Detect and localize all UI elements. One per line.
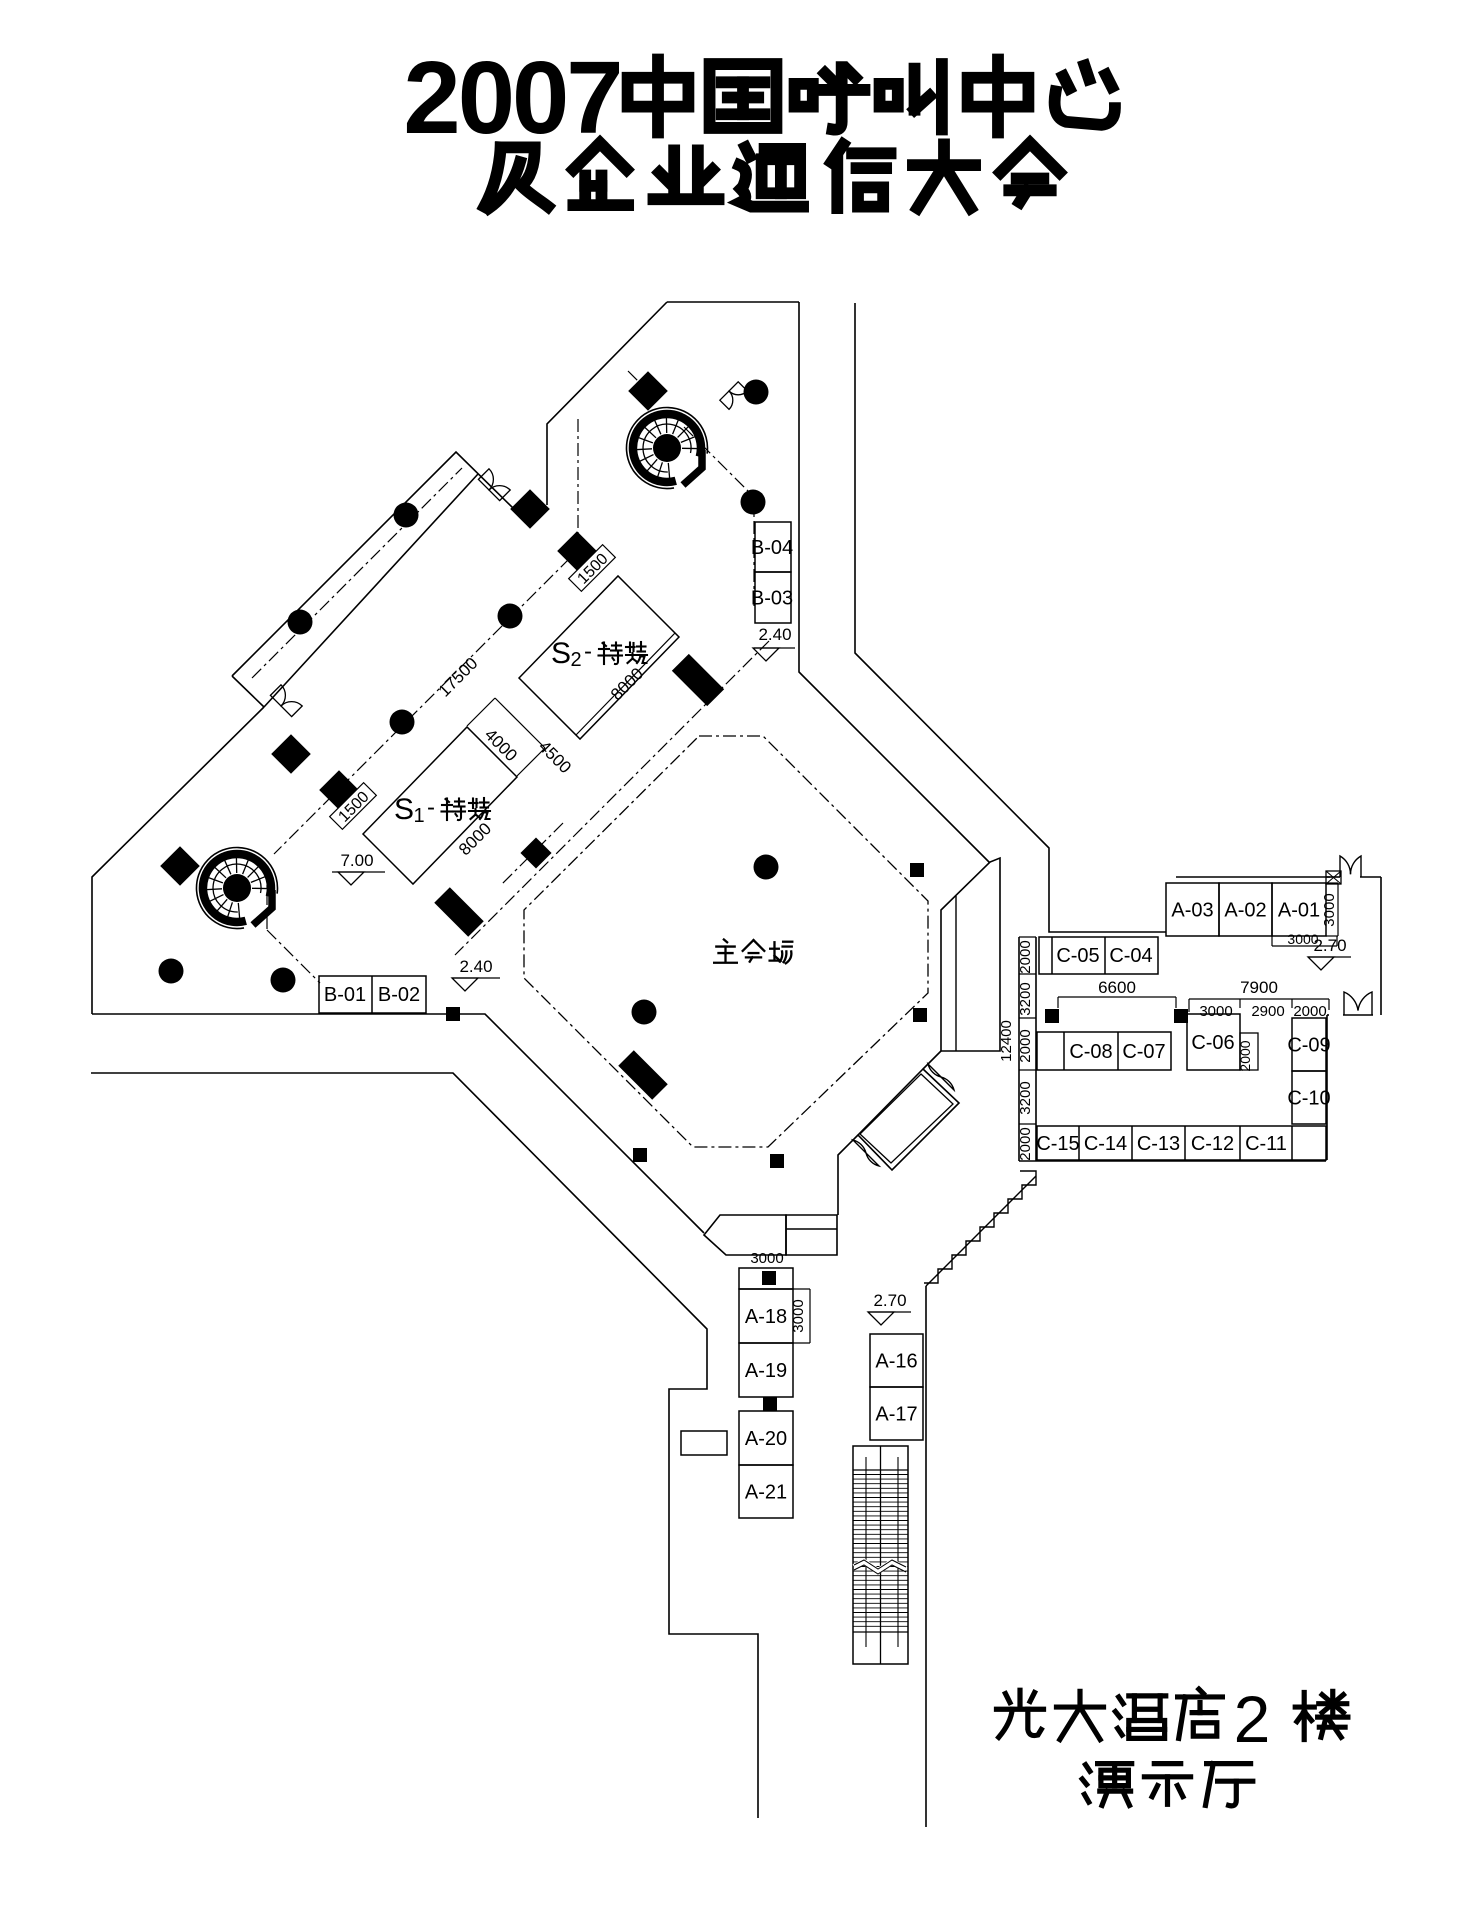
svg-text:2.40: 2.40 bbox=[758, 625, 791, 644]
svg-text:A-20: A-20 bbox=[745, 1428, 787, 1450]
svg-text:7900: 7900 bbox=[1240, 978, 1278, 997]
svg-text:C-15: C-15 bbox=[1036, 1133, 1079, 1155]
svg-text:B-02: B-02 bbox=[378, 984, 420, 1006]
svg-text:C-09: C-09 bbox=[1287, 1035, 1330, 1057]
svg-text:1: 1 bbox=[413, 805, 424, 827]
svg-text:3000: 3000 bbox=[1321, 893, 1338, 926]
svg-text:2000: 2000 bbox=[1017, 1127, 1034, 1160]
svg-text:C-12: C-12 bbox=[1191, 1133, 1234, 1155]
svg-text:A-17: A-17 bbox=[875, 1404, 917, 1426]
svg-text:2: 2 bbox=[1234, 1682, 1271, 1756]
svg-text:A-18: A-18 bbox=[745, 1306, 787, 1328]
svg-text:3000: 3000 bbox=[1199, 1003, 1232, 1020]
svg-text:6600: 6600 bbox=[1098, 978, 1136, 997]
svg-text:-: - bbox=[584, 638, 592, 665]
svg-text:B-03: B-03 bbox=[751, 588, 793, 610]
svg-text:C-04: C-04 bbox=[1109, 945, 1152, 967]
svg-text:2000: 2000 bbox=[1237, 1040, 1253, 1071]
svg-text:C-11: C-11 bbox=[1245, 1133, 1287, 1155]
svg-text:2.70: 2.70 bbox=[1313, 936, 1346, 955]
svg-text:2900: 2900 bbox=[1251, 1003, 1284, 1020]
svg-text:-: - bbox=[427, 794, 435, 821]
svg-text:A-02: A-02 bbox=[1224, 900, 1266, 922]
svg-text:7.00: 7.00 bbox=[340, 851, 373, 870]
svg-text:12400: 12400 bbox=[998, 1020, 1015, 1062]
svg-text:C-06: C-06 bbox=[1191, 1032, 1234, 1054]
svg-text:B-01: B-01 bbox=[324, 984, 366, 1006]
svg-text:A-16: A-16 bbox=[875, 1351, 917, 1373]
svg-text:S: S bbox=[551, 637, 571, 670]
svg-text:2.40: 2.40 bbox=[459, 957, 492, 976]
svg-text:2.70: 2.70 bbox=[873, 1291, 906, 1310]
svg-text:2000: 2000 bbox=[1017, 940, 1034, 973]
svg-text:2007: 2007 bbox=[403, 40, 620, 155]
svg-text:C-13: C-13 bbox=[1137, 1133, 1180, 1155]
svg-text:B-04: B-04 bbox=[751, 537, 793, 559]
svg-text:C-08: C-08 bbox=[1069, 1041, 1112, 1063]
svg-text:C-05: C-05 bbox=[1056, 945, 1099, 967]
svg-text:A-21: A-21 bbox=[745, 1482, 787, 1504]
svg-text:A-03: A-03 bbox=[1171, 900, 1213, 922]
svg-text:C-14: C-14 bbox=[1084, 1133, 1127, 1155]
svg-text:3000: 3000 bbox=[750, 1250, 783, 1267]
svg-text:3200: 3200 bbox=[1017, 982, 1034, 1015]
svg-text:C-07: C-07 bbox=[1122, 1041, 1165, 1063]
svg-text:2: 2 bbox=[570, 649, 581, 671]
svg-text:2000: 2000 bbox=[1017, 1029, 1034, 1062]
svg-text:2000: 2000 bbox=[1293, 1003, 1326, 1020]
svg-text:S: S bbox=[394, 793, 414, 826]
svg-text:C-10: C-10 bbox=[1287, 1088, 1330, 1110]
svg-text:3200: 3200 bbox=[1017, 1081, 1034, 1114]
svg-text:A-01: A-01 bbox=[1278, 900, 1320, 922]
svg-text:A-19: A-19 bbox=[745, 1360, 787, 1382]
svg-text:3000: 3000 bbox=[790, 1299, 807, 1332]
